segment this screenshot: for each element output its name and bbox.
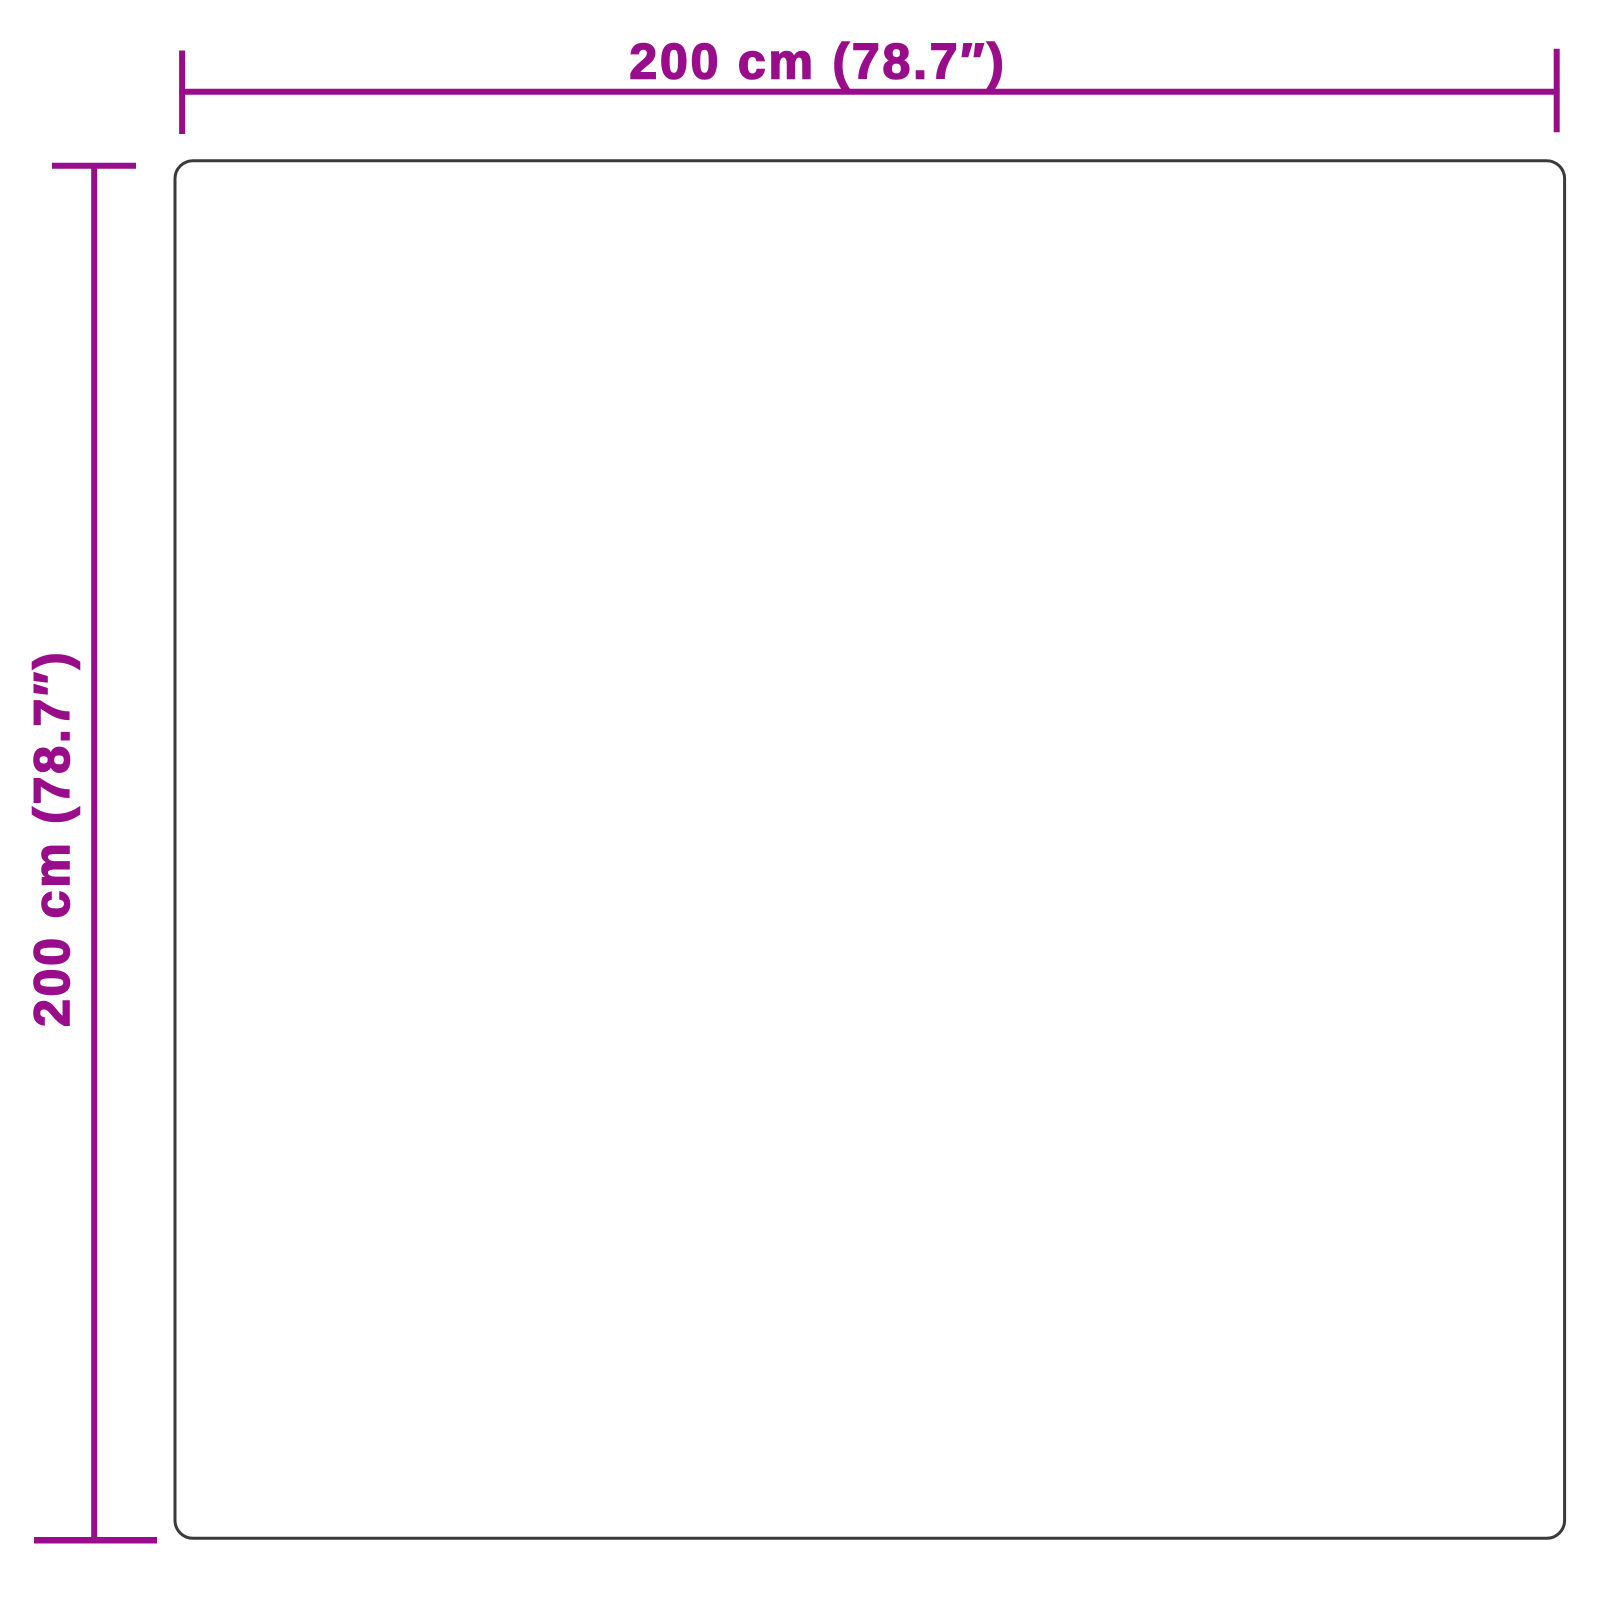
svg-text:200 cm (78.7″): 200 cm (78.7″) [24, 650, 80, 1027]
svg-text:200 cm (78.7″): 200 cm (78.7″) [629, 34, 1006, 90]
